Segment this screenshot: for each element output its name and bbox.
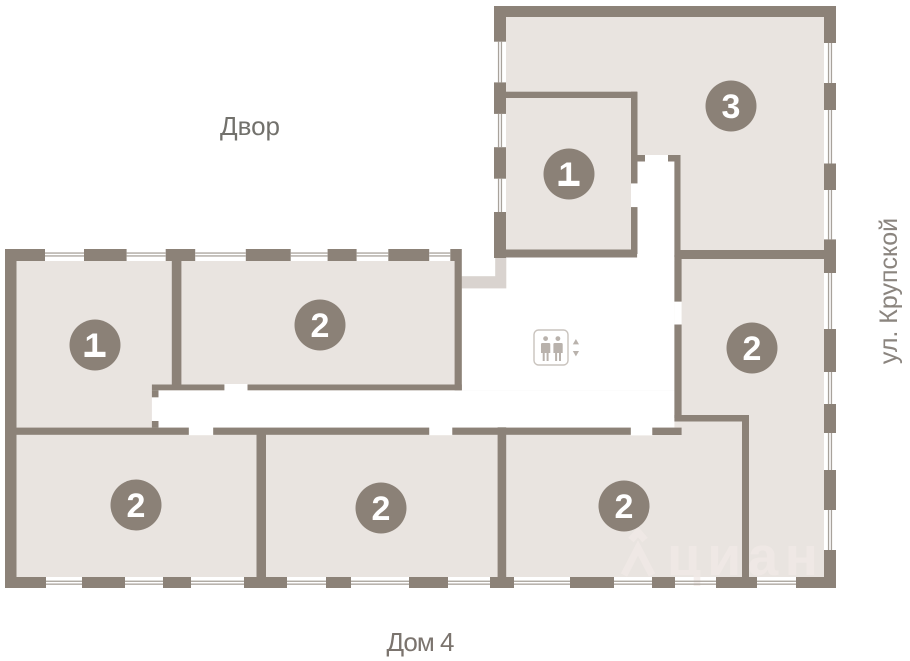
svg-text:2: 2 xyxy=(372,490,391,528)
svg-text:Дом 4: Дом 4 xyxy=(387,627,454,657)
svg-text:2: 2 xyxy=(311,307,330,345)
svg-text:Двор: Двор xyxy=(220,111,280,141)
svg-text:2: 2 xyxy=(127,487,146,525)
svg-text:ул. Крупской: ул. Крупской xyxy=(875,218,903,364)
svg-text:3: 3 xyxy=(722,88,741,126)
svg-text:2: 2 xyxy=(615,488,634,526)
svg-text:1: 1 xyxy=(559,156,578,194)
svg-text:1: 1 xyxy=(85,327,104,365)
svg-text:2: 2 xyxy=(743,330,762,368)
